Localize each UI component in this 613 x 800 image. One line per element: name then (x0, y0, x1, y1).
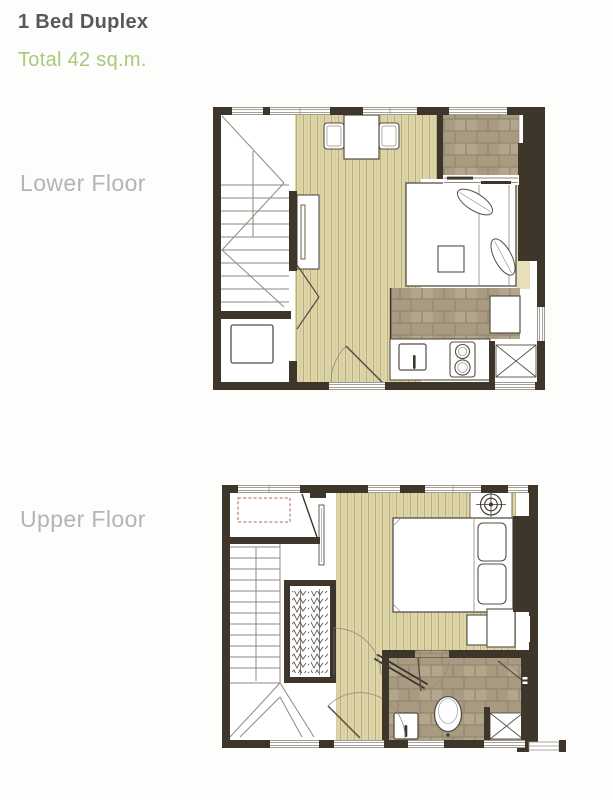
tv-console (297, 195, 319, 269)
bathroom-wall (382, 650, 525, 658)
side-window (538, 307, 545, 341)
door-threshold (334, 741, 384, 748)
window (425, 486, 481, 493)
dining-wood-floor (421, 113, 437, 179)
tv-screen (301, 205, 305, 259)
brochure-page: 1 Bed Duplex Total 42 sq.m. Lower Floor … (0, 0, 613, 800)
understair-wall (219, 311, 291, 319)
lower-floor-label: Lower Floor (20, 170, 146, 197)
balcony-window (449, 108, 507, 115)
window (232, 108, 263, 115)
exhaust-fan-symbol (470, 491, 512, 518)
sink-faucet (413, 355, 416, 369)
bedhead-wall (513, 516, 538, 612)
balcony-corner-wall (523, 107, 545, 147)
page-subtitle: Total 42 sq.m. (18, 49, 147, 72)
upper-floor-plan (222, 485, 566, 752)
window (368, 486, 400, 493)
washbasin (394, 713, 418, 739)
window (363, 108, 417, 115)
refrigerator (490, 296, 520, 333)
bathroom-door-opening (415, 651, 449, 658)
bedside-table (467, 615, 487, 645)
hall-wood-floor (336, 657, 382, 740)
vent-grille (408, 741, 444, 748)
lower-floor-plan (213, 107, 545, 390)
storage-unit (231, 325, 273, 363)
pillow (478, 564, 506, 604)
dining-table (344, 115, 379, 159)
cabinet (487, 609, 515, 647)
service-shaft (496, 345, 536, 377)
window (270, 108, 330, 115)
double-bed (406, 183, 520, 286)
vent-grille (484, 741, 525, 748)
kitchen-sink (399, 344, 426, 370)
page-title: 1 Bed Duplex (18, 11, 148, 34)
entrance-threshold (329, 383, 385, 390)
kitchen-counter (390, 339, 490, 380)
balcony-sliding-door (443, 175, 519, 185)
window (508, 486, 528, 493)
wardrobe (287, 583, 333, 680)
void-room-wall (228, 537, 320, 544)
folded-blanket (438, 246, 464, 272)
service-shaft (490, 713, 523, 739)
balcony-tile-floor (443, 113, 519, 177)
wall-niche (519, 616, 530, 642)
double-bed (393, 518, 513, 612)
wall-mirror (319, 505, 324, 565)
window (238, 486, 300, 493)
pillow (478, 523, 506, 561)
balcony-partition (437, 113, 443, 179)
stair-partition (289, 191, 297, 271)
upper-floor-label: Upper Floor (20, 506, 146, 533)
balcony-side-wall (518, 143, 545, 261)
exterior-rail (529, 740, 566, 752)
vent-grille (495, 383, 535, 390)
window (270, 741, 319, 748)
